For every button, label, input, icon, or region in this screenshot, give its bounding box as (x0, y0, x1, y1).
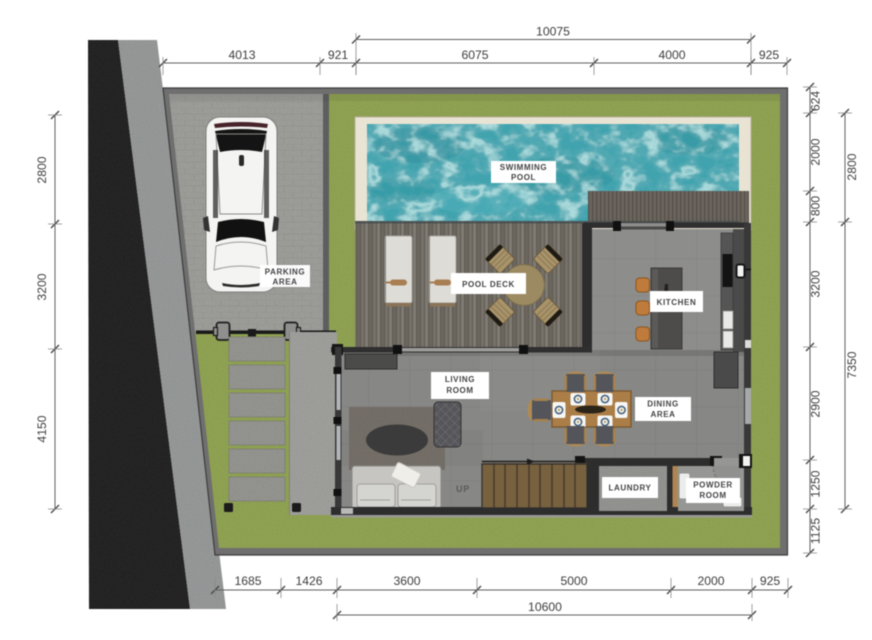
svg-text:2800: 2800 (35, 156, 49, 183)
svg-text:UP: UP (456, 484, 470, 494)
svg-text:4000: 4000 (658, 48, 685, 62)
svg-text:ROOM: ROOM (446, 386, 473, 395)
svg-text:921: 921 (328, 48, 349, 62)
svg-text:2000: 2000 (809, 138, 823, 165)
svg-text:KITCHEN: KITCHEN (657, 298, 697, 307)
svg-text:7350: 7350 (845, 351, 859, 378)
svg-text:1250: 1250 (809, 470, 823, 497)
svg-text:LIVING: LIVING (445, 375, 475, 384)
svg-text:2800: 2800 (845, 153, 859, 180)
svg-text:POOL: POOL (511, 173, 536, 182)
svg-text:10600: 10600 (528, 600, 562, 614)
svg-text:6075: 6075 (461, 48, 488, 62)
svg-text:2000: 2000 (697, 574, 724, 588)
svg-text:PARKING: PARKING (265, 268, 306, 277)
svg-text:10075: 10075 (536, 25, 570, 39)
svg-text:SWIMMING: SWIMMING (500, 163, 547, 172)
svg-text:5000: 5000 (560, 574, 587, 588)
svg-text:POWDER: POWDER (693, 481, 733, 490)
svg-text:2900: 2900 (809, 390, 823, 417)
svg-text:3600: 3600 (393, 574, 420, 588)
svg-text:AREA: AREA (650, 410, 675, 419)
svg-text:POOL DECK: POOL DECK (462, 280, 515, 289)
svg-text:AREA: AREA (272, 278, 297, 287)
svg-text:LAUNDRY: LAUNDRY (608, 484, 651, 493)
svg-text:4150: 4150 (35, 415, 49, 442)
svg-text:925: 925 (759, 48, 780, 62)
svg-text:624: 624 (809, 91, 823, 112)
svg-text:DINING: DINING (647, 400, 679, 409)
svg-text:925: 925 (760, 574, 781, 588)
svg-text:3200: 3200 (35, 273, 49, 300)
svg-text:800: 800 (809, 196, 823, 217)
svg-text:1685: 1685 (234, 574, 261, 588)
svg-text:1426: 1426 (295, 574, 322, 588)
svg-text:1125: 1125 (809, 518, 823, 544)
svg-text:4013: 4013 (228, 48, 255, 62)
svg-text:ROOM: ROOM (699, 491, 726, 500)
svg-text:3200: 3200 (809, 270, 823, 297)
